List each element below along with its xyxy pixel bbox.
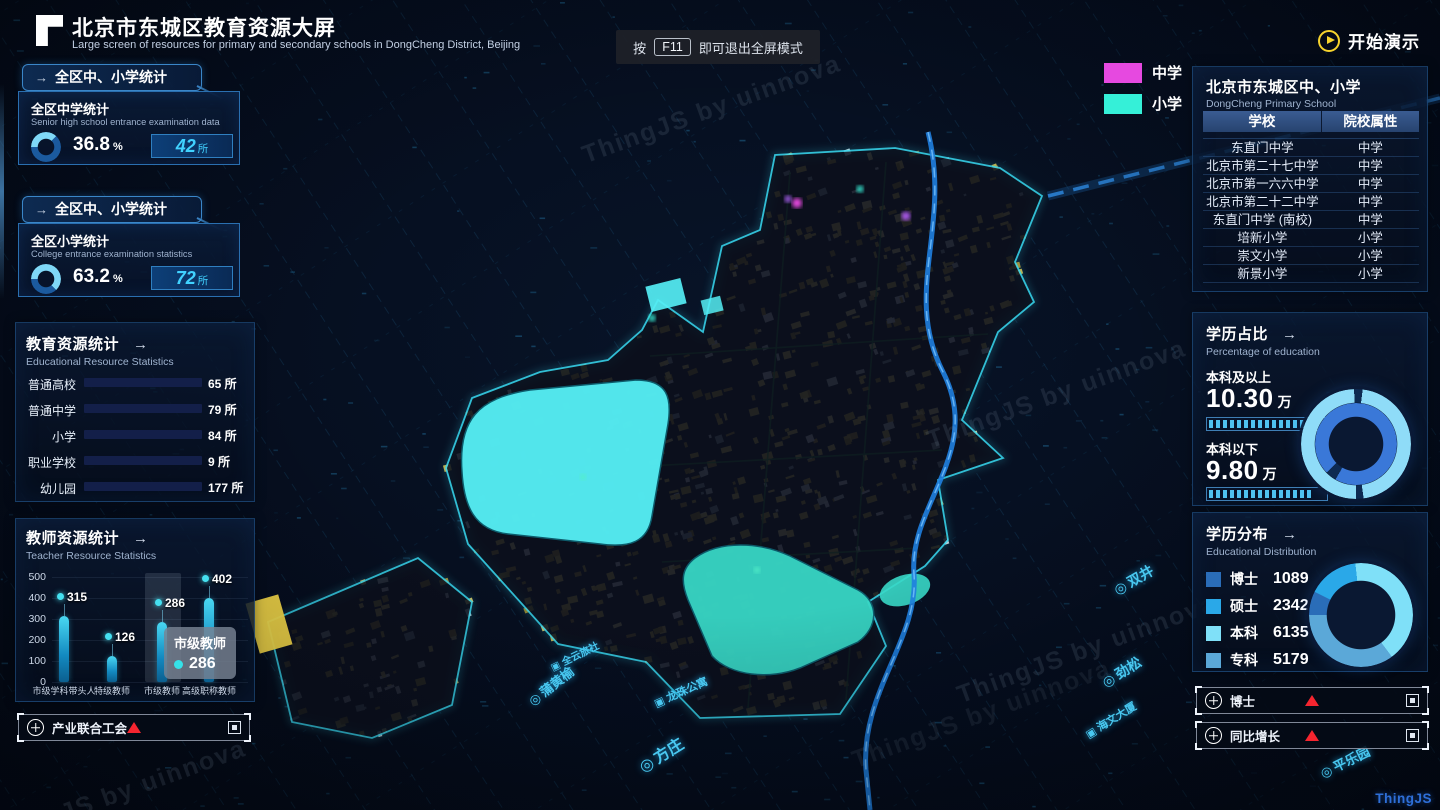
y-tick: 100	[20, 655, 46, 667]
fullscreen-hint: 按 F11 即可退出全屏模式	[616, 30, 820, 64]
bar-track	[84, 456, 202, 465]
page-title: 北京市东城区教育资源大屏	[72, 12, 336, 42]
target-square-icon[interactable]	[228, 721, 241, 734]
x-label: 高级职称教师	[174, 684, 244, 697]
bar-track	[84, 404, 202, 413]
edu-distribution-panel: 学历分布→ Educational Distribution 博士1089 硕士…	[1192, 512, 1428, 672]
more-arrow-icon[interactable]: →	[1282, 326, 1298, 343]
resource-row: 普通中学 79 所	[16, 401, 254, 417]
metric-value: 9.80万	[1206, 455, 1277, 486]
alert-triangle-icon	[1305, 730, 1319, 741]
doctor-expand-bar[interactable]: 博士	[1196, 687, 1428, 714]
marker-stem	[64, 604, 65, 616]
legend-middle-school: 中学	[1104, 62, 1182, 83]
arrow-icon: →	[35, 202, 48, 217]
schools-panel: 北京市东城区中、小学 DongCheng Primary School 学校 院…	[1192, 66, 1428, 292]
dot-icon	[202, 575, 209, 582]
bar-column[interactable]: 126	[107, 572, 117, 682]
panel-subtitle: Teacher Resource Statistics	[26, 550, 156, 562]
bar-column[interactable]: 315	[59, 572, 69, 682]
percent-value: 63.2%	[73, 266, 123, 288]
teacher-resources-panel: 教师资源统计→ Teacher Resource Statistics 500 …	[15, 518, 255, 702]
gauge-donut	[31, 264, 61, 294]
bar-track	[84, 430, 202, 439]
panel-title: 教育资源统计→	[26, 333, 149, 354]
resource-row: 职业学校 9 所	[16, 453, 254, 469]
y-tick: 200	[20, 634, 46, 646]
chart-tooltip: 市级教师 286	[164, 627, 236, 679]
row-value: 65 所	[208, 375, 237, 392]
bar-label: 产业联合工会	[52, 718, 127, 737]
statbox-title: 全区小学统计	[31, 231, 109, 250]
segmented-bar	[1206, 487, 1328, 501]
legend-primary-school: 小学	[1104, 93, 1182, 114]
gauge-donut	[31, 132, 61, 162]
panel-title: 学历占比→	[1206, 323, 1298, 344]
alert-triangle-icon	[127, 722, 141, 733]
table-body: 东直门中学中学 北京市第二十七中学中学 北京市第一六六中学中学 北京市第二十二中…	[1203, 132, 1419, 283]
legend-swatch	[1206, 572, 1221, 587]
union-expand-bar[interactable]: 产业联合工会	[18, 714, 250, 741]
thingjs-logo: ThingJS	[1375, 791, 1432, 806]
row-label: 幼儿园	[16, 480, 76, 497]
edge-glow	[0, 84, 4, 299]
alert-triangle-icon	[1305, 695, 1319, 706]
start-demo-label: 开始演示	[1348, 28, 1420, 53]
map-legend: 中学 小学	[1104, 62, 1182, 124]
panel-subtitle: Educational Distribution	[1206, 546, 1316, 558]
row-label: 职业学校	[16, 454, 76, 471]
row-value: 84 所	[208, 427, 237, 444]
dot-icon	[57, 593, 64, 600]
yoy-growth-expand-bar[interactable]: 同比增长	[1196, 722, 1428, 749]
table-row[interactable]: 东直门中学 (南校)中学	[1203, 211, 1419, 229]
row-label: 普通中学	[16, 402, 76, 419]
row-label: 小学	[16, 428, 76, 445]
dot-icon	[174, 660, 183, 669]
marker: 286	[155, 596, 185, 610]
table-row[interactable]: 北京市第二十二中学中学	[1203, 193, 1419, 211]
dashboard-root: ThingJS by uinnova ThingJS by uinnova Th…	[0, 0, 1440, 810]
legend-label: 中学	[1152, 62, 1182, 83]
marker: 402	[202, 572, 232, 586]
plus-circle-icon[interactable]	[1205, 727, 1222, 744]
partial-row	[1203, 132, 1419, 139]
bar-track	[84, 482, 202, 491]
bar	[59, 616, 69, 682]
resource-row: 普通高校 65 所	[16, 375, 254, 391]
target-square-icon[interactable]	[1406, 694, 1419, 707]
y-tick: 300	[20, 613, 46, 625]
bar-label: 博士	[1230, 691, 1255, 710]
bar	[107, 656, 117, 682]
arrow-icon: →	[35, 70, 48, 85]
primary-school-swatch	[1104, 94, 1142, 114]
table-row[interactable]: 东直门中学中学	[1203, 139, 1419, 157]
count-box: 72所	[151, 266, 233, 290]
percent-value: 36.8%	[73, 134, 123, 156]
resource-row: 小学 84 所	[16, 427, 254, 443]
segmented-fill	[1209, 420, 1316, 428]
primary-school-statbox: 全区小学统计 College entrance examination stat…	[18, 223, 240, 297]
y-tick: 500	[20, 571, 46, 583]
more-arrow-icon[interactable]: →	[133, 336, 149, 353]
edu-resources-panel: 教育资源统计→ Educational Resource Statistics …	[15, 322, 255, 502]
legend-item: 本科6135	[1206, 623, 1309, 643]
count-box: 42所	[151, 134, 233, 158]
marker-stem	[112, 644, 113, 656]
education-ring-chart	[1301, 389, 1411, 499]
legend-item: 博士1089	[1206, 569, 1309, 589]
panel-title: 学历分布→	[1206, 523, 1298, 544]
legend-item: 硕士2342	[1206, 596, 1309, 616]
gridline	[52, 682, 248, 683]
play-icon	[1318, 30, 1340, 52]
legend-swatch	[1206, 626, 1221, 641]
panel-title: 北京市东城区中、小学	[1206, 76, 1361, 97]
statbox-subtitle: College entrance examination statistics	[31, 249, 192, 259]
legend-label: 小学	[1152, 93, 1182, 114]
col-school: 学校	[1203, 111, 1322, 132]
row-value: 9 所	[208, 453, 230, 470]
table-row[interactable]: 培新小学小学	[1203, 229, 1419, 247]
legend-swatch	[1206, 599, 1221, 614]
edu-percentage-panel: 学历占比→ Percentage of education 本科及以上 10.3…	[1192, 312, 1428, 506]
row-label: 普通高校	[16, 376, 76, 393]
bar-label: 同比增长	[1230, 726, 1280, 745]
y-tick: 400	[20, 592, 46, 604]
table-row[interactable]: 北京市第二十七中学中学	[1203, 157, 1419, 175]
panel-subtitle: DongCheng Primary School	[1206, 98, 1336, 110]
dot-icon	[105, 633, 112, 640]
start-demo-button[interactable]: 开始演示	[1318, 28, 1420, 53]
page-subtitle: Large screen of resources for primary an…	[72, 39, 520, 51]
marker-stem	[209, 586, 210, 598]
dot-icon	[155, 599, 162, 606]
target-square-icon[interactable]	[1406, 729, 1419, 742]
bar-track	[84, 378, 202, 387]
table-header: 学校 院校属性	[1203, 111, 1419, 132]
row-value: 79 所	[208, 401, 237, 418]
segmented-fill	[1209, 490, 1311, 498]
tab-district-stats-1[interactable]: →全区中、小学统计	[22, 64, 202, 91]
statbox-subtitle: Senior high school entrance examination …	[31, 117, 220, 127]
distribution-ring-chart	[1309, 563, 1413, 667]
legend-swatch	[1206, 653, 1221, 668]
legend-item: 专科5179	[1206, 650, 1309, 670]
col-type: 院校属性	[1322, 111, 1419, 132]
more-arrow-icon[interactable]: →	[1282, 526, 1298, 543]
middle-school-swatch	[1104, 63, 1142, 83]
marker: 126	[105, 630, 135, 644]
hint-suffix: 即可退出全屏模式	[699, 38, 803, 57]
middle-school-statbox: 全区中学统计 Senior high school entrance exami…	[18, 91, 240, 165]
panel-subtitle: Percentage of education	[1206, 346, 1320, 358]
table-row[interactable]: 北京市第一六六中学中学	[1203, 175, 1419, 193]
hint-prefix: 按	[633, 38, 646, 57]
tab-district-stats-2[interactable]: →全区中、小学统计	[22, 196, 202, 223]
panel-subtitle: Educational Resource Statistics	[26, 356, 174, 368]
row-value: 177 所	[208, 479, 243, 496]
table-row[interactable]: 新景小学小学	[1203, 265, 1419, 283]
table-row[interactable]: 崇文小学小学	[1203, 247, 1419, 265]
marker: 315	[57, 590, 87, 604]
plus-circle-icon[interactable]	[27, 719, 44, 736]
statbox-title: 全区中学统计	[31, 99, 109, 118]
plus-circle-icon[interactable]	[1205, 692, 1222, 709]
more-arrow-icon[interactable]: →	[133, 530, 149, 547]
f11-key: F11	[654, 38, 691, 56]
resource-row: 幼儿园 177 所	[16, 479, 254, 495]
panel-title: 教师资源统计→	[26, 527, 149, 548]
marker-stem	[162, 610, 163, 622]
metric-value: 10.30万	[1206, 383, 1292, 414]
